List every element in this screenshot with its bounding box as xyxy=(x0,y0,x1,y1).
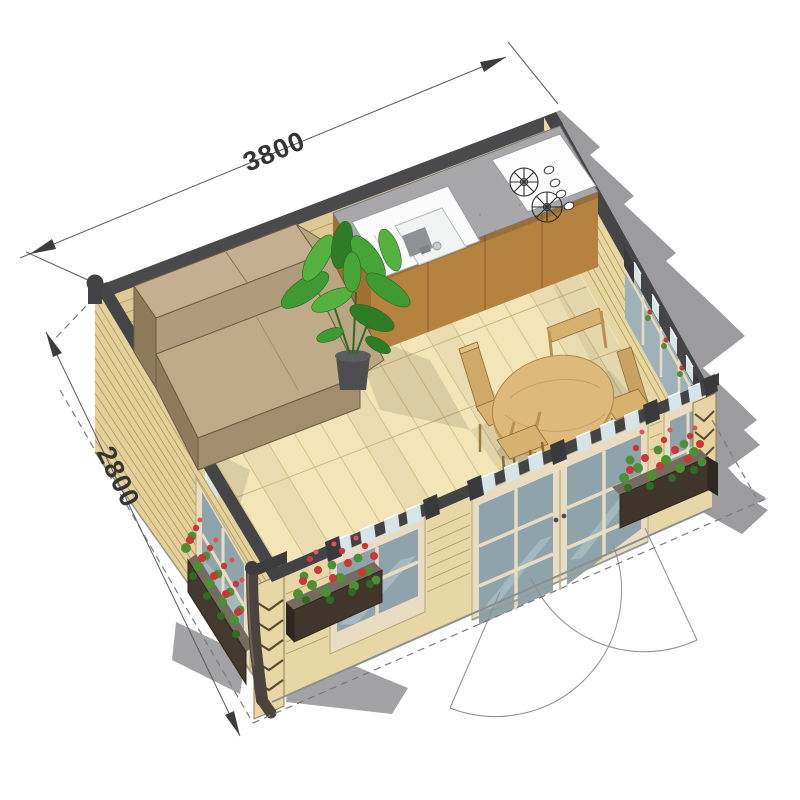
dimension-label-width: 3800 xyxy=(239,125,310,177)
dimension-arrow xyxy=(225,711,240,736)
sink-drain xyxy=(433,242,441,250)
door-handle xyxy=(554,518,559,523)
door-handle xyxy=(562,514,567,519)
isometric-cabin-drawing: 3800 2800 xyxy=(0,0,800,800)
dimension-arrow xyxy=(480,57,506,72)
dimension-arrow xyxy=(30,239,56,254)
cabin-floorplan-illustration: 3800 2800 xyxy=(0,0,800,800)
corner-post-cap xyxy=(87,275,104,305)
burner xyxy=(510,168,538,196)
door-swing-arc xyxy=(531,578,697,652)
dimension-arrow xyxy=(46,332,62,357)
